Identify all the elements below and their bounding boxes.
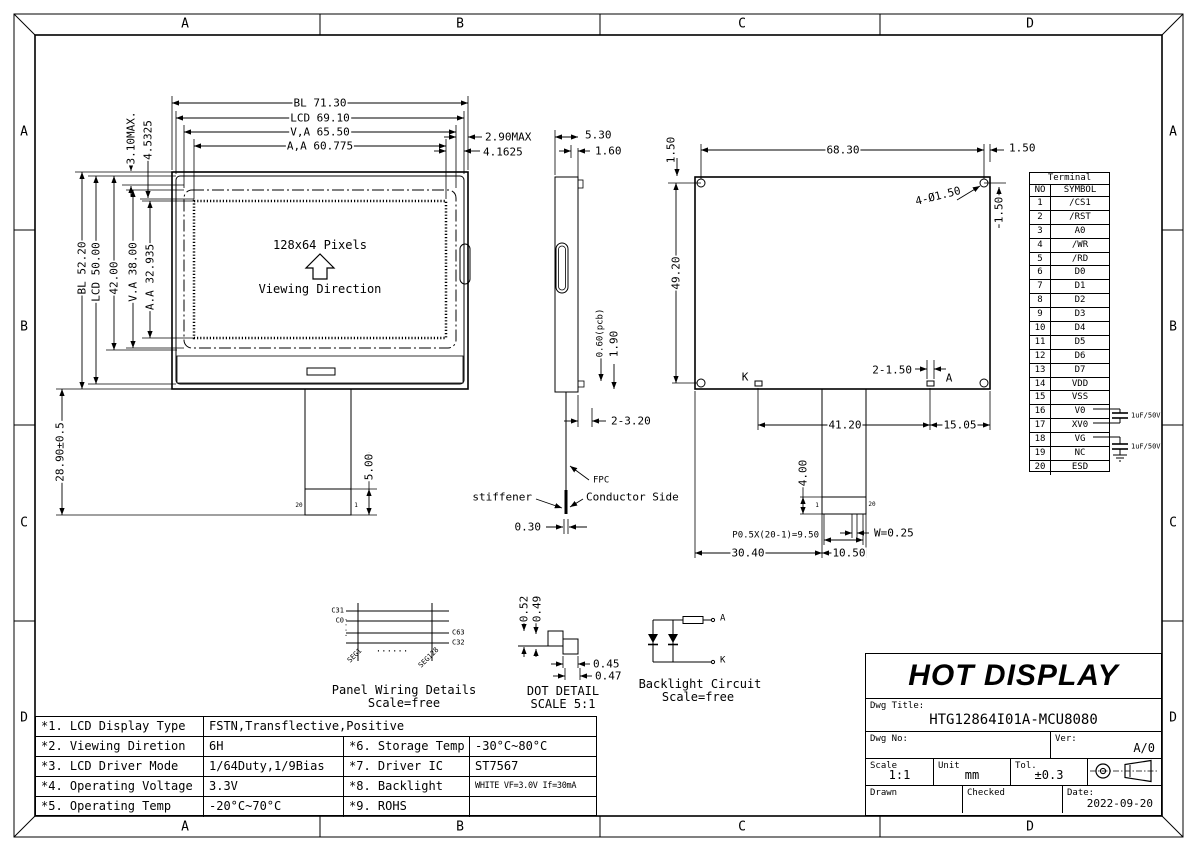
zone-row-left-d: D bbox=[19, 712, 29, 725]
pixel-count-label: 128x64 Pixels bbox=[272, 239, 368, 251]
seg1-label: SEG1 bbox=[346, 647, 364, 665]
labels-layer: A B C D A B C D A B C D A B C D BL 71.30… bbox=[0, 0, 1197, 851]
seg128-label: SEG128 bbox=[417, 646, 441, 670]
dim-side-tab: 1.60 bbox=[594, 146, 623, 157]
dim-side-bottom: 2-3.20 bbox=[610, 416, 652, 427]
dim-hole-right-offset: 1.50 bbox=[1008, 143, 1037, 154]
backlight-caption: Backlight Circuit bbox=[638, 678, 763, 690]
dim-va-width: V,A 65.50 bbox=[289, 127, 351, 138]
zone-row-left-a: A bbox=[19, 126, 29, 139]
dim-fpc-length: 28.90±0.5 bbox=[55, 421, 66, 483]
dot-detail-scale: SCALE 5:1 bbox=[529, 698, 596, 710]
rear-pin-20: 20 bbox=[867, 502, 876, 508]
dim-lcd-height: LCD 50.00 bbox=[91, 241, 102, 303]
dim-fpc-thickness: 0.30 bbox=[514, 522, 543, 533]
viewing-direction-label: Viewing Direction bbox=[258, 283, 383, 295]
dim-mounting-holes: 4-Ø1.50 bbox=[913, 185, 963, 207]
dim-left-span: 30.40 bbox=[730, 548, 765, 559]
zone-row-right-b: B bbox=[1168, 321, 1178, 334]
dim-pad-span: 41.20 bbox=[827, 420, 862, 431]
com-label-c32: C32 bbox=[451, 640, 466, 647]
zone-col-top-d: D bbox=[1025, 18, 1035, 31]
drawing-sheet: Terminal NO SYMBOL 1/CS1 2/RST 3A0 4/WR … bbox=[0, 0, 1197, 851]
cathode-pad-label: K bbox=[741, 372, 750, 383]
zone-col-top-b: B bbox=[455, 18, 465, 31]
cap2-value: 1uF/50V bbox=[1130, 444, 1162, 451]
dot-dim-2: 0.49 bbox=[532, 595, 543, 624]
zone-col-bottom-c: C bbox=[737, 821, 747, 834]
zone-row-right-d: D bbox=[1168, 712, 1178, 725]
zone-col-top-a: A bbox=[180, 18, 190, 31]
dim-hole-right-v-offset: 1.50 bbox=[994, 196, 1005, 225]
zone-row-right-c: C bbox=[1168, 517, 1178, 530]
zone-row-left-c: C bbox=[19, 517, 29, 530]
dim-border-margin: 4.1625 bbox=[482, 147, 524, 158]
wiring-caption: Panel Wiring Details bbox=[331, 684, 478, 696]
stiffener-label: stiffener bbox=[471, 492, 533, 503]
dim-bezel-margin: 2.90MAX bbox=[484, 132, 532, 143]
dim-pads: 2-1.50 bbox=[871, 365, 913, 376]
dim-bl-width: BL 71.30 bbox=[293, 98, 348, 109]
dim-pin-width: W=0.25 bbox=[873, 528, 915, 539]
dim-side-width: 5.30 bbox=[584, 130, 613, 141]
dim-pcb-thickness: 0.60(pcb) bbox=[597, 308, 606, 359]
dim-lcd-width: LCD 69.10 bbox=[289, 113, 351, 124]
dim-pcb-height: 42.00 bbox=[109, 260, 120, 295]
dot-dim-1: 0.52 bbox=[519, 595, 530, 624]
dim-top-offset: 4.5325 bbox=[143, 119, 154, 161]
dim-aa-width: A,A 60.775 bbox=[286, 141, 354, 152]
dim-side-bump: 1.90 bbox=[609, 330, 620, 359]
anode-pad-label: A bbox=[945, 373, 954, 384]
com-label-c63: C63 bbox=[451, 630, 466, 637]
dim-rear-width: 68.30 bbox=[825, 145, 860, 156]
dim-pad-right: 15.05 bbox=[942, 420, 977, 431]
dim-connector-height: 4.00 bbox=[798, 459, 809, 488]
dim-bl-height: BL 52.20 bbox=[77, 241, 88, 296]
seg-ellipsis: ...... bbox=[375, 646, 410, 655]
cap1-value: 1uF/50V bbox=[1130, 413, 1162, 420]
conductor-side-label: Conductor Side bbox=[585, 492, 680, 503]
wiring-scale: Scale=free bbox=[367, 697, 441, 709]
backlight-scale: Scale=free bbox=[661, 691, 735, 703]
backlight-anode-label: A bbox=[719, 615, 726, 624]
dim-stiffener-length: 5.00 bbox=[364, 453, 375, 482]
dim-top-max: 3.10MAX. bbox=[126, 111, 137, 166]
dim-hole-top-offset: 1.50 bbox=[666, 136, 677, 165]
front-pin-1: 1 bbox=[353, 503, 359, 509]
dim-aa-height: A.A 32.935 bbox=[145, 243, 156, 311]
rear-pin-1: 1 bbox=[814, 503, 820, 509]
fpc-label: FPC bbox=[592, 477, 610, 486]
zone-col-bottom-b: B bbox=[455, 821, 465, 834]
dot-detail-caption: DOT DETAIL bbox=[526, 685, 600, 697]
dot-dim-3: 0.45 bbox=[592, 659, 621, 670]
dim-va-height: V.A 38.00 bbox=[128, 241, 139, 303]
dim-rear-height: 49.20 bbox=[671, 255, 682, 290]
zone-col-top-c: C bbox=[737, 18, 747, 31]
dot-dim-4: 0.47 bbox=[594, 671, 623, 682]
front-pin-20: 20 bbox=[294, 503, 303, 509]
zone-col-bottom-a: A bbox=[180, 821, 190, 834]
zone-col-bottom-d: D bbox=[1025, 821, 1035, 834]
com-label-c31: C31 bbox=[330, 608, 345, 615]
com-ellipsis: .... bbox=[344, 617, 351, 640]
dim-connector-width: 10.50 bbox=[831, 548, 866, 559]
zone-row-right-a: A bbox=[1168, 126, 1178, 139]
dim-pin-pitch: P0.5X(20-1)=9.50 bbox=[731, 532, 820, 541]
backlight-cathode-label: K bbox=[719, 657, 726, 666]
zone-row-left-b: B bbox=[19, 321, 29, 334]
